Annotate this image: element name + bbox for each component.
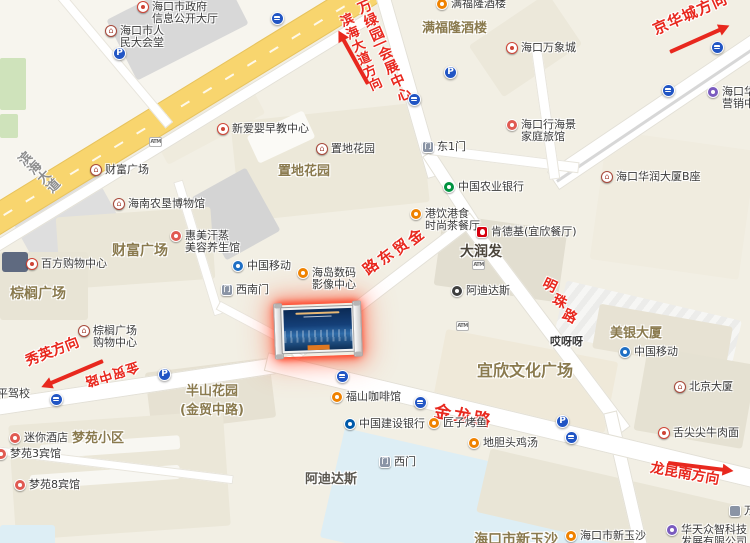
kfc-icon [476,226,488,238]
poi-mengyuan-3-hotel[interactable]: 梦苑3宾馆 [0,448,61,460]
china-mobile-icon [232,260,244,272]
atm-icon[interactable]: ATM [149,137,162,147]
china-mobile-icon [619,346,631,358]
poi-mini-hotel[interactable]: 迷你酒店 [9,432,68,444]
poi-aiyaya[interactable]: 哎呀呀 [550,333,583,349]
billboard-post [352,300,363,356]
poi-caifu-plaza[interactable]: ⌂ 财富广场 [90,164,149,176]
gate-icon: 门 [422,141,434,153]
hotel-icon [14,479,26,491]
poi-huaxin-marketing[interactable]: 海口华营销中 [707,86,750,109]
atm-icon[interactable]: ATM [472,260,485,270]
sign-xiuying-direction: 秀英方向 [22,332,81,371]
area-label-meiyin-tower: 美银大厦 [610,322,662,341]
poi-beijing-tower[interactable]: ⌂ 北京大厦 [674,381,733,393]
area-label-banshan-line2: (金贸中路) [176,399,248,418]
company-icon [707,86,719,98]
poi-gov-info-hall[interactable]: 海口市政府信息公开大厅 [137,1,218,24]
bank-icon [443,181,455,193]
poi-icon [137,1,149,13]
poi-nongken-museum[interactable]: ⌂ 海南农垦博物馆 [113,198,205,210]
restaurant-icon [468,437,480,449]
area-label-xinyusha: 海口市新玉沙 [474,529,558,543]
building-icon: ⌂ [674,381,686,393]
poi-east-gate-1[interactable]: 门 东1门 [422,141,466,153]
area-label-mengyuan: 梦苑小区 [72,427,124,446]
poi-ccb-bank[interactable]: 中国建设银行 [344,418,425,430]
poi-huimei-spa[interactable]: 惠美汗蒸美容养生馆 [170,230,240,253]
poi-xinyusha[interactable]: 海口市新玉沙 [565,530,646,542]
bus-stop-icon[interactable] [336,370,349,383]
area-label-zonglv-plaza: 棕榈广场 [10,283,66,303]
bus-stop-icon[interactable] [662,84,675,97]
poi-zonglv-mall[interactable]: ⌂ 棕榈广场购物中心 [78,325,137,348]
poi-shejianjian-noodles[interactable]: 舌尖尖牛肉面 [658,427,739,439]
hotel-icon [9,432,21,444]
area-label-caifu-plaza: 财富广场 [112,240,168,260]
poi-west-gate[interactable]: 门 西门 [379,456,416,468]
building-icon: ⌂ [601,171,613,183]
poi-icon [565,530,577,542]
park-green-area [0,58,26,110]
area-label-banshan-garden: 半山花园 (金贸中路) [176,380,248,418]
gate-icon: 门 [379,456,391,468]
building-icon: ⌂ [78,325,90,337]
billboard-image [283,308,352,351]
road-label-mingzhu: 明珠路 [543,275,583,331]
construction-area [0,525,55,543]
billboard-marker[interactable] [273,299,363,360]
company-icon [666,524,678,536]
map-canvas[interactable]: 滨海大道 金贸东路 明珠路 金龙路 金贸中路 万绿园|会展中心 滨海大道方向 京… [0,0,750,543]
poi-icon [729,505,741,517]
parking-icon[interactable]: P [158,368,171,381]
area-label-manfulong: 满福隆酒楼 [422,17,487,36]
hotel-icon [0,448,7,460]
building-icon: ⌂ [90,164,102,176]
bus-stop-icon[interactable] [565,431,578,444]
restaurant-icon [658,427,670,439]
poi-huarun-tower-b[interactable]: ⌂ 海口华润大厦B座 [601,171,701,183]
area-label-zhidi-garden: 置地花园 [278,160,330,179]
area-label-yixin-plaza: 宜欣文化广场 [477,357,573,381]
spa-icon [170,230,182,242]
store-icon [451,285,463,297]
hotel-icon [506,119,518,131]
poi-wanxiangcheng[interactable]: 海口万象城 [506,42,576,54]
poi-huatian-tech[interactable]: 华天众智科技发展有限公司 [666,524,747,543]
sign-jinghua-direction: 京华城方向 [649,0,731,39]
area-label-darunfa: 大润发 [460,241,502,261]
parking-icon[interactable]: P [556,415,569,428]
building-icon: ⌂ [105,25,117,37]
poi-southwest-gate[interactable]: 门 西南门 [221,284,269,296]
restaurant-icon [436,0,448,10]
restaurant-icon [410,208,422,220]
restaurant-icon [428,417,440,429]
poi-xinghaijing-hostel[interactable]: 海口行海景家庭旅馆 [506,119,576,142]
poi-people-hall[interactable]: ⌂ 海口市人民大会堂 [105,25,164,48]
gate-icon: 门 [221,284,233,296]
bank-icon [344,418,356,430]
poi-mengyuan-8-hotel[interactable]: 梦苑8宾馆 [14,479,80,491]
poi-adidas-north[interactable]: 阿迪达斯 [451,285,510,297]
poi-fushan-coffee[interactable]: 福山咖啡馆 [331,391,401,403]
bus-stop-icon[interactable] [50,393,63,406]
bus-stop-icon[interactable] [711,41,724,54]
poi-gangyin-teahouse[interactable]: 港饮港食时尚茶餐厅 [410,208,480,231]
road-label-jinmao-east: 金贸东路 [362,226,426,274]
museum-icon: ⌂ [113,198,125,210]
poi-haidao-digital[interactable]: 海岛数码影像中心 [297,267,356,290]
poi-xinaiying[interactable]: 新爱婴早教中心 [217,123,309,135]
parking-icon[interactable]: P [444,66,457,79]
poi-icon [217,123,229,135]
area-label-adidas: 阿迪达斯 [305,468,357,487]
area-label-banshan-line1: 半山花园 [176,380,248,399]
poi-abc-bank[interactable]: 中国农业银行 [443,181,524,193]
bus-stop-icon[interactable] [414,396,427,409]
poi-china-mobile-west[interactable]: 中国移动 [232,260,291,272]
bus-stop-icon[interactable] [408,93,421,106]
poi-didantou-soup[interactable]: 地胆头鸡汤 [468,437,538,449]
poi-zhidi-garden[interactable]: ⌂ 置地花园 [316,143,375,155]
park-green-area [0,114,18,138]
poi-china-mobile-east[interactable]: 中国移动 [619,346,678,358]
poi-clipped-right-edge[interactable]: 万 [729,505,750,517]
coffee-icon [331,391,343,403]
building-block [2,252,28,272]
poi-icon [26,258,38,270]
poi-icon [506,42,518,54]
atm-icon[interactable]: ATM [456,321,469,331]
store-icon [297,267,309,279]
bus-stop-icon[interactable] [271,12,284,25]
building-icon: ⌂ [316,143,328,155]
poi-jiangzi-grill[interactable]: 匠子烤鱼 [428,417,487,429]
poi-baifang-mall[interactable]: 百方购物中心 [26,258,107,270]
poi-taiping-driving-school[interactable]: 太平驾校 [0,388,30,400]
poi-manfulong-hotel[interactable]: 满福隆酒楼 [436,0,506,10]
poi-kfc[interactable]: 肯德基(宜欣餐厅) [476,226,577,238]
billboard-panel [280,305,356,355]
